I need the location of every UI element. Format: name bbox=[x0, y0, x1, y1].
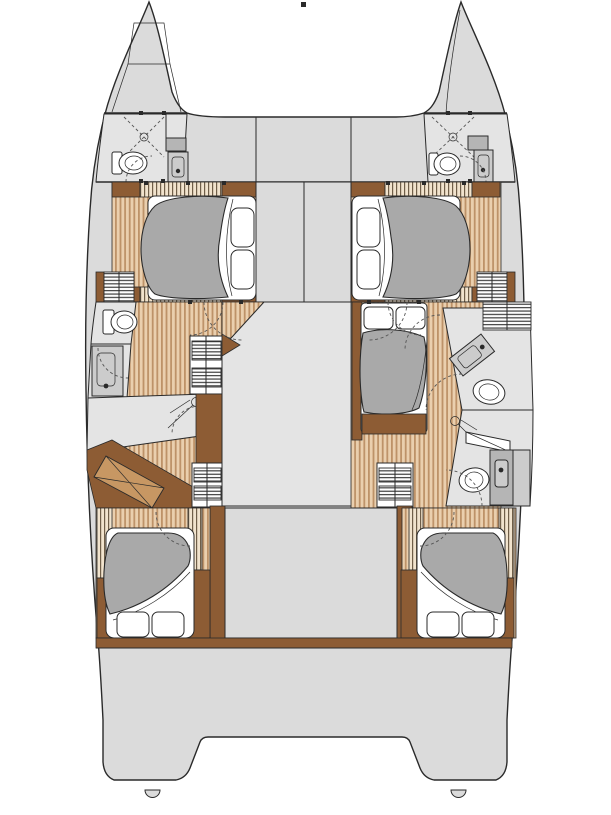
bow-point-marker bbox=[301, 2, 306, 7]
cockpit-block bbox=[225, 508, 397, 638]
step-locker bbox=[477, 272, 515, 302]
starboard-rudder bbox=[451, 790, 466, 798]
pillar bbox=[513, 450, 530, 506]
step-locker bbox=[96, 272, 134, 302]
duvet bbox=[383, 196, 470, 298]
toilet-icon bbox=[103, 310, 137, 334]
port-forward-cabin bbox=[96, 182, 258, 302]
port-bow-head bbox=[96, 114, 188, 182]
bed-foot-board bbox=[362, 414, 426, 434]
double-berth bbox=[104, 528, 194, 638]
deck-plan-page bbox=[0, 0, 611, 815]
wardrobe-starboard bbox=[377, 463, 413, 507]
sink-vanity bbox=[490, 450, 513, 505]
port-aft-cabin bbox=[96, 508, 210, 638]
pillow bbox=[231, 208, 254, 247]
duvet bbox=[141, 196, 228, 298]
toilet-icon bbox=[429, 153, 460, 175]
sink-vanity bbox=[474, 150, 493, 182]
sink-vanity bbox=[168, 152, 188, 182]
sink-vanity bbox=[92, 346, 123, 396]
pillow bbox=[357, 208, 380, 247]
starboard-aft-cabin bbox=[401, 508, 516, 638]
shelf bbox=[166, 138, 186, 151]
pillow bbox=[396, 307, 425, 329]
double-berth bbox=[360, 303, 427, 434]
central-forepeak-block bbox=[256, 182, 351, 302]
wardrobe-port-aft bbox=[192, 463, 223, 507]
cabinet-port bbox=[196, 394, 223, 463]
pillow bbox=[427, 612, 459, 637]
wardrobe-louver bbox=[483, 302, 531, 330]
engine-flank-port bbox=[210, 506, 225, 640]
pillow bbox=[117, 612, 149, 637]
catamaran-deck-plan bbox=[0, 0, 611, 815]
toilet-icon bbox=[112, 152, 147, 174]
wardrobe-port-forward bbox=[190, 336, 223, 394]
port-rudder bbox=[145, 790, 160, 798]
pillow bbox=[152, 612, 184, 637]
step-slats bbox=[140, 182, 222, 197]
pillow bbox=[231, 250, 254, 289]
starboard-forward-cabin bbox=[351, 182, 515, 302]
pillow bbox=[462, 612, 494, 637]
step-slats bbox=[385, 182, 472, 197]
duvet bbox=[360, 330, 426, 414]
shelf bbox=[468, 136, 488, 150]
double-berth bbox=[352, 196, 470, 300]
double-berth bbox=[417, 528, 507, 638]
starboard-bow-head bbox=[424, 114, 515, 182]
pillow bbox=[357, 250, 380, 289]
double-berth bbox=[141, 196, 256, 300]
transom-band bbox=[96, 638, 512, 648]
